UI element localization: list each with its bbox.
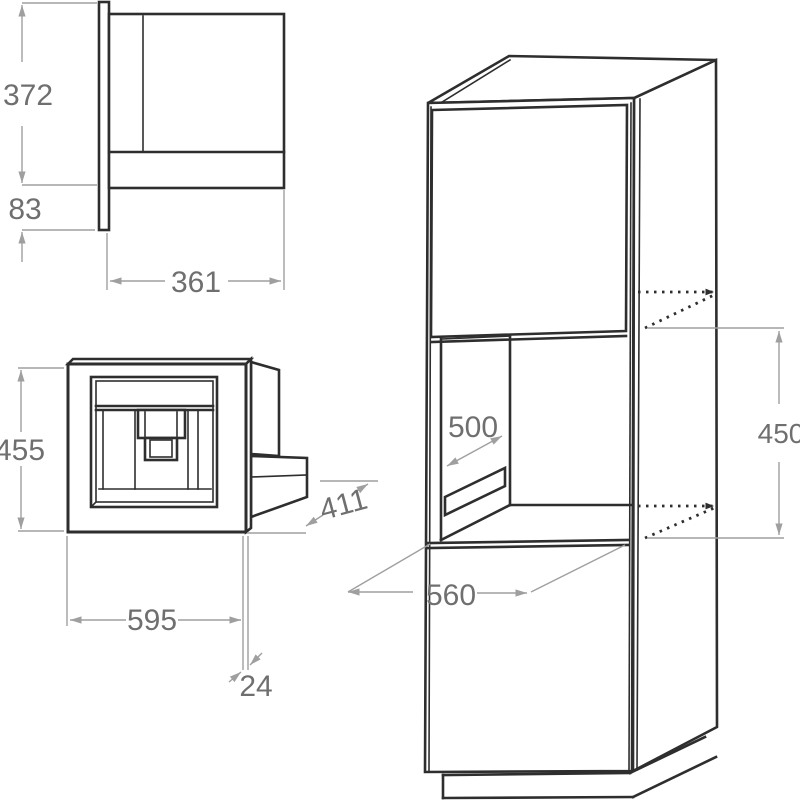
dim-label-niche-width: 560 (426, 579, 476, 612)
front-view-outline (68, 359, 307, 532)
diagram-canvas: 372 83 361 (0, 0, 800, 800)
dim-label-front-width: 595 (127, 604, 177, 637)
cabinet-side-panel (633, 60, 717, 771)
front-panel-edge (99, 2, 109, 230)
installation-diagram: 372 83 361 (0, 0, 800, 800)
dim-label-niche-depth: 500 (448, 411, 498, 444)
dim-label-side-height: 372 (3, 79, 53, 112)
dim-label-side-depth: 361 (171, 266, 221, 299)
dim-label-front-height: 455 (0, 434, 45, 467)
appliance-body (109, 14, 284, 188)
dim-label-niche-height: 450 (758, 418, 800, 449)
upper-door (431, 105, 627, 337)
dim-label-panel-thickness: 24 (239, 670, 272, 703)
plinth-bottom-edge (443, 797, 633, 798)
dim-label-side-bottom: 83 (8, 193, 41, 226)
body-side-strip (251, 362, 279, 456)
